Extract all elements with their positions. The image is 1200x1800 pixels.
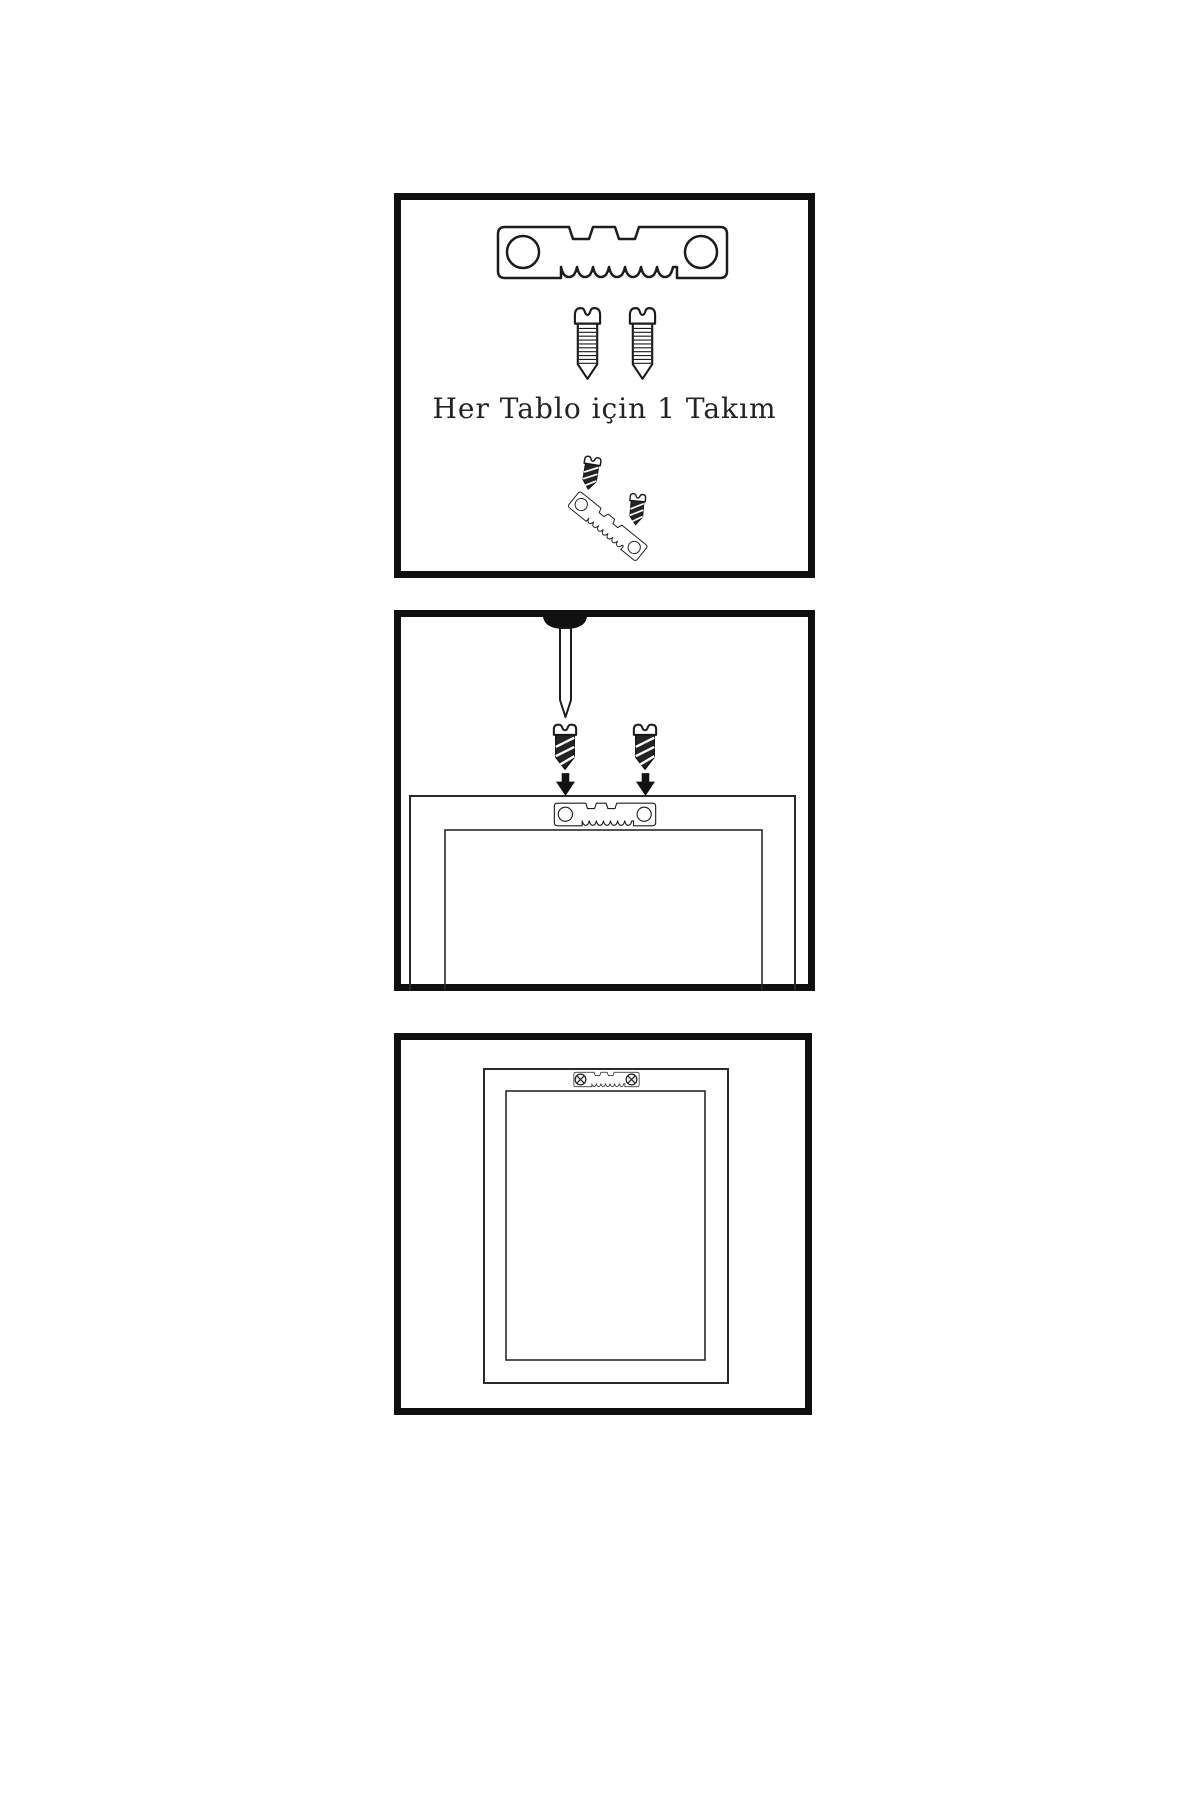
brand-footer: ENK WALL ART [0, 1470, 1200, 1670]
step-2-mounting-panel [394, 610, 815, 991]
instruction-sheet: Her Tablo için 1 Takım [0, 0, 1200, 1800]
step-1-hardware-kit-panel [394, 193, 815, 578]
kit-caption: Her Tablo için 1 Takım [394, 392, 815, 425]
step-3-hung-frame-panel [394, 1033, 812, 1415]
